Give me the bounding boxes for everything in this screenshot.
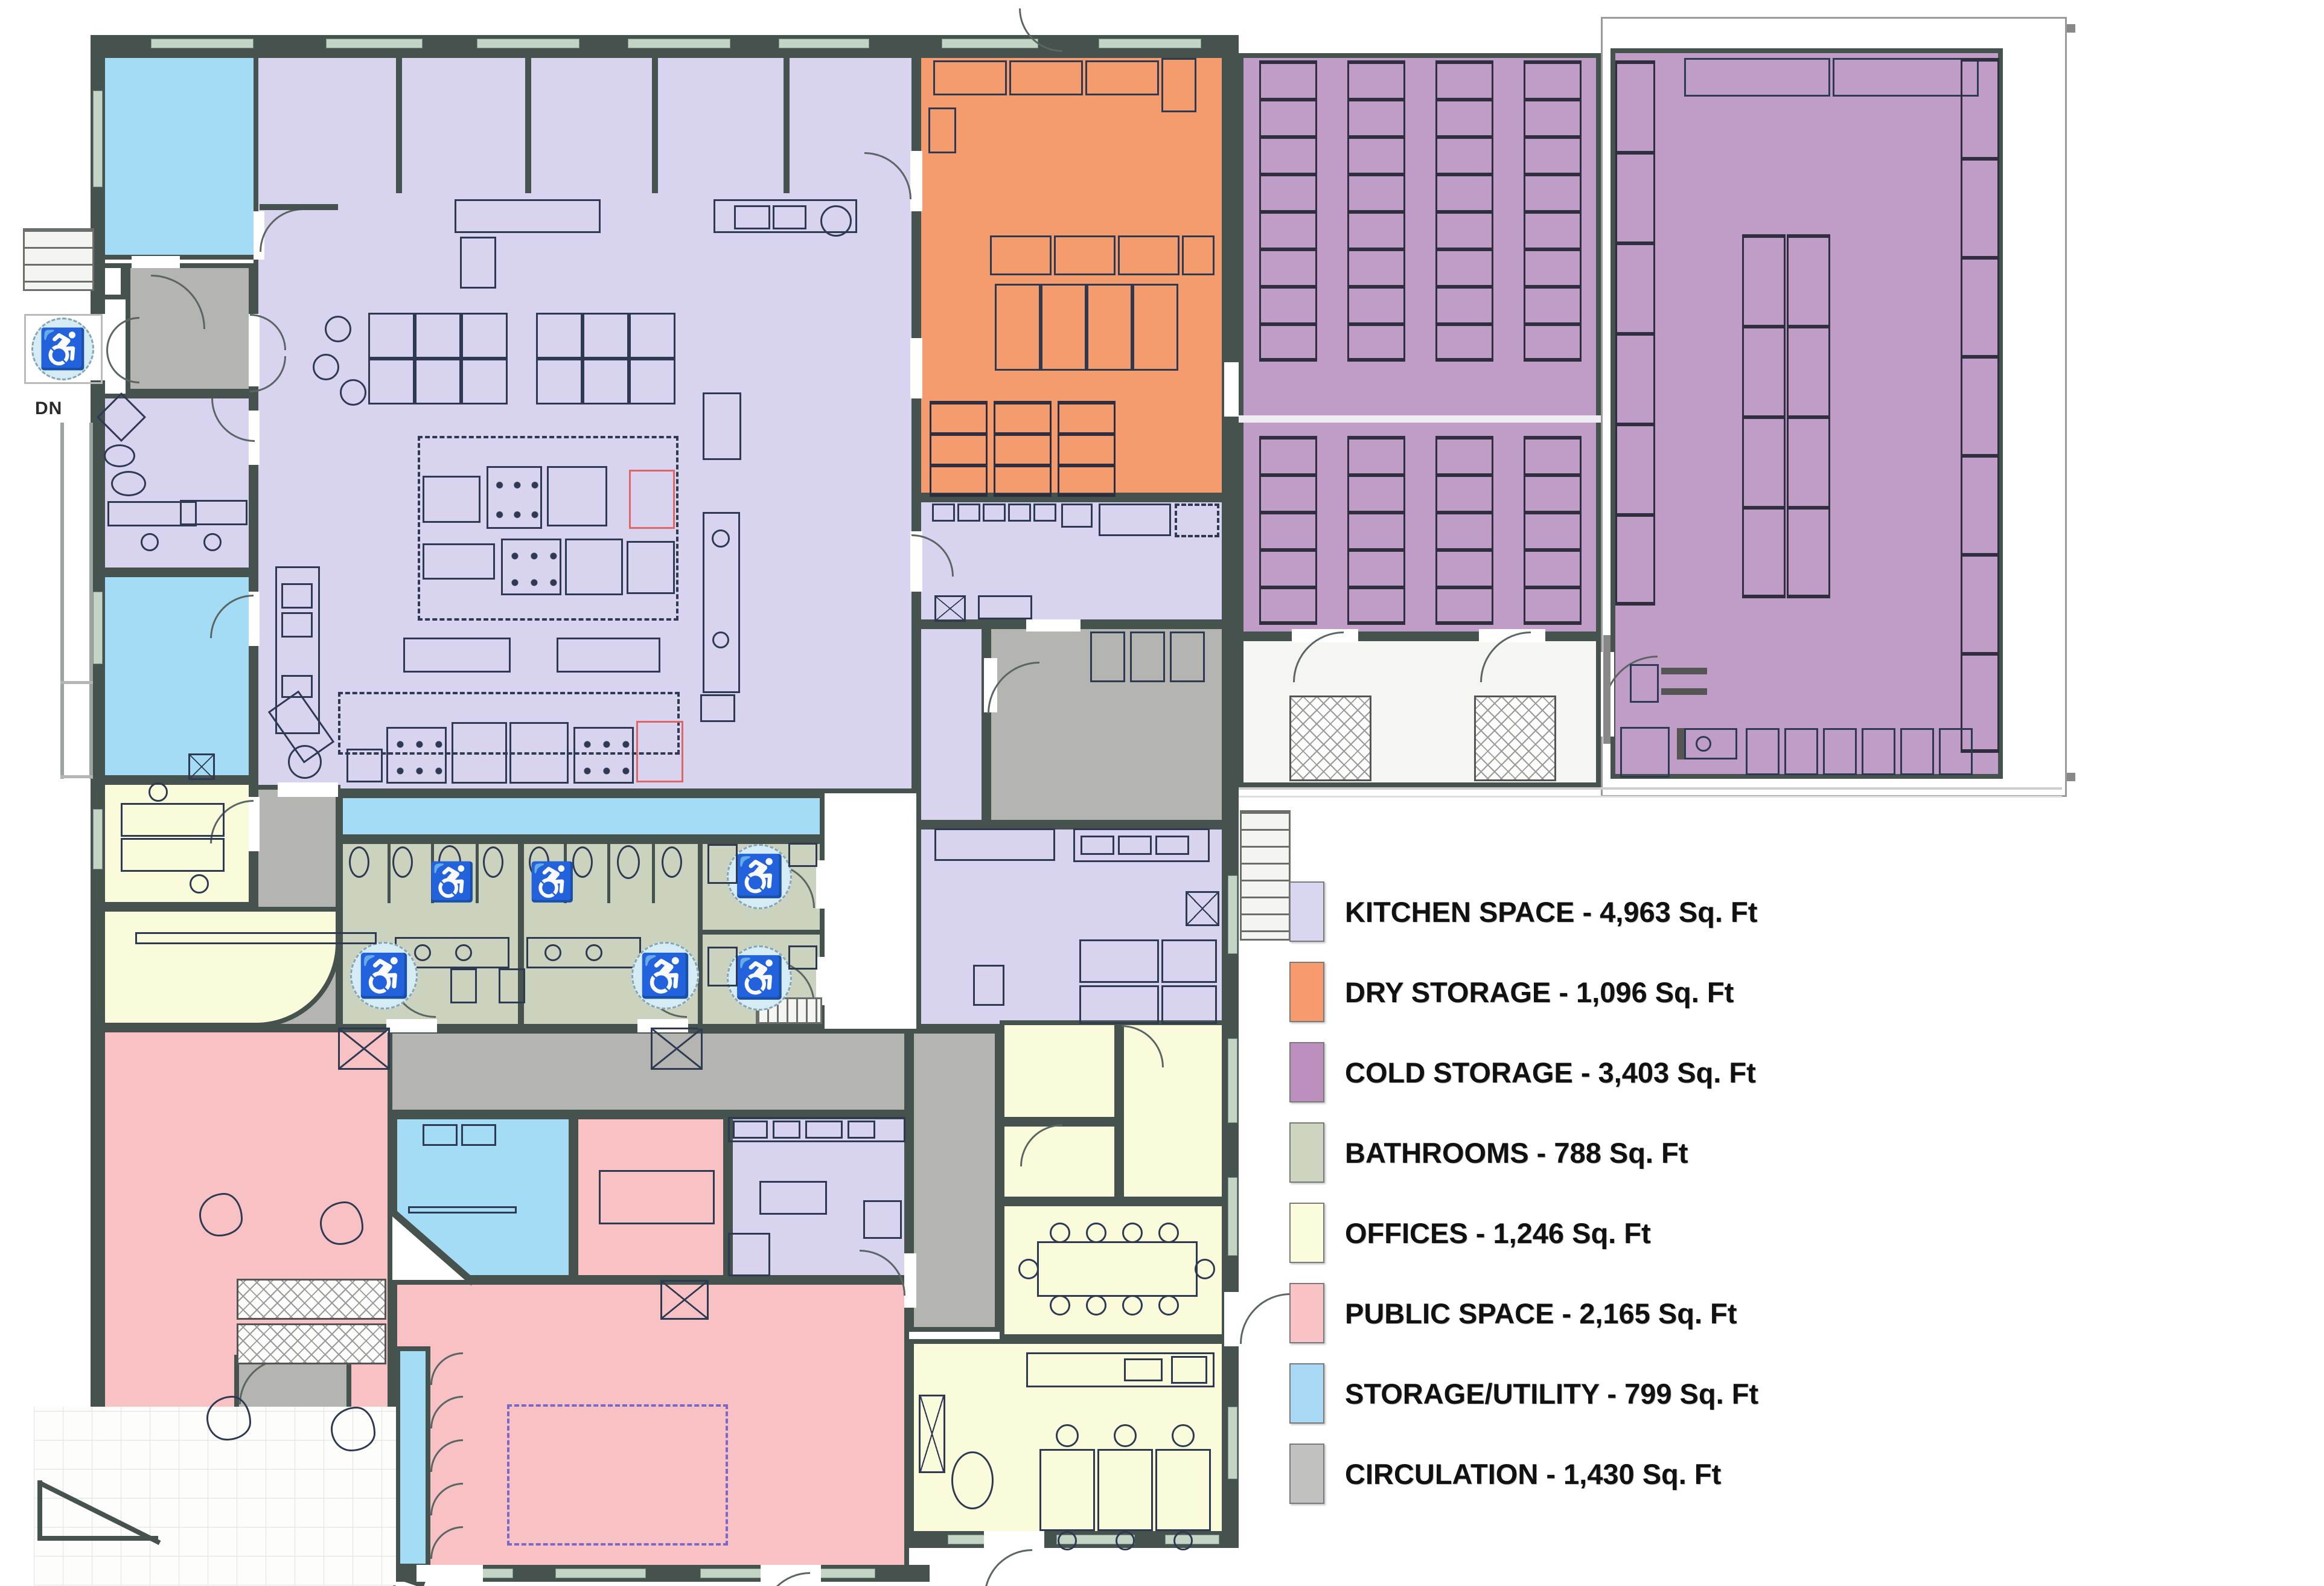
equipment-outline <box>1118 836 1152 855</box>
room-corridor-east <box>909 1029 1000 1332</box>
equipment-outline <box>1939 728 1973 775</box>
rack-cell <box>1961 159 1999 258</box>
room-kitchen-main <box>254 53 916 793</box>
rack-cell <box>1435 550 1493 587</box>
equipment-outline <box>773 205 806 229</box>
legend-label: STORAGE/UTILITY - 799 Sq. Ft <box>1345 1377 1758 1410</box>
rack-cell <box>1058 403 1116 434</box>
filled-shape <box>37 1480 42 1541</box>
equipment-outline <box>707 844 738 884</box>
rack-cell <box>1787 236 1830 327</box>
rack-cell <box>1347 513 1405 550</box>
window <box>1228 875 1237 954</box>
rack-cell <box>1742 236 1786 327</box>
rack-cell <box>1347 174 1405 212</box>
door-opening <box>984 1531 1044 1548</box>
hatch-pad <box>237 1279 386 1320</box>
equipment-outline <box>135 932 377 944</box>
rack-cell <box>1961 555 1999 654</box>
rack-cell <box>1524 287 1582 324</box>
equipment-outline <box>423 476 480 523</box>
hatch-pad <box>237 1323 386 1364</box>
rack-cell <box>1961 357 1999 456</box>
rack-cell <box>1435 324 1493 362</box>
lounge-chair <box>320 1201 363 1245</box>
equipment-outline <box>526 937 641 968</box>
equipment-outline <box>346 749 383 782</box>
legend-item-public-space: PUBLIC SPACE - 2,165 Sq. Ft <box>1289 1284 1758 1342</box>
stairs <box>1240 810 1291 941</box>
equipment-outline <box>1061 504 1093 528</box>
legend-swatch-public-space <box>1289 1283 1324 1343</box>
equipment-outline <box>1037 1241 1198 1297</box>
legend-label: DRY STORAGE - 1,096 Sq. Ft <box>1345 976 1734 1009</box>
pallet-rack <box>1787 234 1830 596</box>
rack-cell <box>1435 249 1493 287</box>
legend-swatch-dry-storage <box>1289 962 1324 1022</box>
wall <box>525 53 531 193</box>
equipment-outline <box>934 828 1055 861</box>
hatch-pad <box>1474 695 1556 781</box>
fixture-circle <box>325 316 351 342</box>
wall <box>260 204 338 210</box>
equipment-outline <box>627 541 675 594</box>
door-swing <box>106 317 139 350</box>
rack-cell <box>1524 249 1582 287</box>
equipment-outline <box>1784 728 1818 775</box>
fixture-ellipse <box>349 846 369 878</box>
filled-shape <box>1603 635 1611 744</box>
equipment-outline <box>583 313 629 359</box>
equipment-outline <box>1684 58 1830 97</box>
equipment-outline <box>1118 235 1180 275</box>
equipment-outline <box>990 235 1052 275</box>
door-opening <box>1224 362 1239 417</box>
rack-cell <box>1524 137 1582 174</box>
wall <box>652 53 658 193</box>
door-opening <box>1224 1292 1239 1346</box>
window <box>93 592 103 664</box>
rack-cell <box>930 403 988 434</box>
range-burners <box>501 539 561 595</box>
fixture-circle <box>1158 1223 1179 1243</box>
equipment-outline <box>1079 939 1159 983</box>
legend-swatch-bathrooms <box>1289 1122 1324 1183</box>
rack-cell <box>1259 438 1317 475</box>
equipment-outline <box>536 313 583 359</box>
equipment-outline <box>1085 60 1159 95</box>
rack-cell <box>1615 62 1655 153</box>
window <box>942 39 1038 48</box>
range-burners <box>386 727 447 784</box>
equipment-outline <box>565 539 623 595</box>
equipment-outline <box>629 359 675 404</box>
window <box>628 39 730 48</box>
rack-cell <box>1347 587 1405 625</box>
fixture-circle <box>1172 1424 1195 1447</box>
window <box>1228 1407 1237 1479</box>
fixture-circle <box>455 944 472 961</box>
fixture-circle <box>190 874 209 894</box>
x-marker <box>934 595 966 622</box>
fixture-ellipse <box>111 471 146 496</box>
equipment-outline <box>983 504 1006 522</box>
range-burners <box>573 727 634 784</box>
rack-cell <box>1347 550 1405 587</box>
rack-cell <box>930 465 988 497</box>
rack-cell <box>1259 513 1317 550</box>
rack-cell <box>1058 465 1116 497</box>
equipment-outline <box>1090 632 1125 682</box>
window <box>555 1568 646 1578</box>
fixture-circle <box>141 533 159 551</box>
rack-cell <box>1524 324 1582 362</box>
rack-cell <box>1615 153 1655 243</box>
equipment-outline <box>415 359 461 404</box>
fixture-circle <box>1056 1424 1079 1447</box>
door-opening <box>904 1253 916 1308</box>
equipment-outline <box>933 60 1007 95</box>
filled-shape <box>1239 796 2062 798</box>
equipment-outline <box>978 595 1032 619</box>
window <box>326 39 423 48</box>
equipment-outline <box>1170 632 1205 682</box>
equipment-outline <box>423 543 495 580</box>
rack-cell <box>1435 475 1493 513</box>
equipment-outline <box>1155 836 1189 855</box>
fixture-ellipse <box>951 1451 994 1509</box>
accessible-symbol: ♿ <box>631 942 699 1009</box>
fixture-circle <box>586 944 602 961</box>
rack-cell <box>1435 174 1493 212</box>
range-burners <box>487 466 542 529</box>
equipment-outline <box>557 638 660 673</box>
equipment-outline <box>583 359 629 404</box>
equipment-outline <box>1008 504 1031 522</box>
x-marker <box>919 1395 945 1473</box>
window <box>779 39 869 48</box>
door-opening <box>1026 619 1081 632</box>
filled-shape <box>60 775 93 778</box>
fixture-circle <box>1122 1295 1143 1316</box>
equipment-outline <box>1130 632 1165 682</box>
rack-cell <box>1347 100 1405 137</box>
rack-cell <box>1259 62 1317 100</box>
fixture-circle <box>1195 1259 1215 1279</box>
window <box>93 91 103 187</box>
floor-plan-sheet: ♿DN♿♿♿♿♿♿ KITCHEN SPACE - 4,963 Sq. Ft D… <box>0 0 2324 1586</box>
equipment-outline <box>1900 728 1934 775</box>
legend-swatch-circulation <box>1289 1444 1324 1504</box>
legend-item-circulation: CIRCULATION - 1,430 Sq. Ft <box>1289 1445 1758 1503</box>
rack-cell <box>1259 287 1317 324</box>
equipment-outline <box>973 965 1004 1006</box>
fixture-circle <box>544 944 561 961</box>
rack-cell <box>1524 550 1582 587</box>
rack-cell <box>1742 508 1786 598</box>
rack-cell <box>1058 434 1116 465</box>
legend-label: CIRCULATION - 1,430 Sq. Ft <box>1345 1457 1721 1491</box>
equipment-outline <box>1171 1356 1207 1384</box>
filled-shape <box>89 423 93 779</box>
equipment-outline <box>759 1181 827 1215</box>
window <box>1228 1038 1237 1123</box>
fixture-circle <box>1122 1223 1143 1243</box>
rack-cell <box>1524 438 1582 475</box>
x-marker <box>338 1028 390 1070</box>
rack-cell <box>1347 438 1405 475</box>
equipment-outline <box>928 107 956 153</box>
fixture-circle <box>1114 1424 1137 1447</box>
legend-item-dry-storage: DRY STORAGE - 1,096 Sq. Ft <box>1289 963 1758 1021</box>
pallet-rack <box>1259 436 1317 623</box>
equipment-outline <box>423 1124 458 1146</box>
equipment-outline <box>281 612 313 638</box>
equipment-outline <box>1039 1449 1095 1531</box>
rack-cell <box>1615 243 1655 334</box>
equipment-outline <box>403 638 511 673</box>
rack-cell <box>1259 324 1317 362</box>
fixture-ellipse <box>392 846 413 878</box>
equipment-outline <box>932 504 955 522</box>
equipment-outline <box>805 1121 843 1139</box>
rack-cell <box>1259 550 1317 587</box>
equipment-outline <box>408 1206 517 1213</box>
equipment-outline <box>460 237 496 289</box>
equipment-outline <box>1033 504 1056 522</box>
rack-cell <box>1259 100 1317 137</box>
rack-cell <box>1347 249 1405 287</box>
equipment-outline <box>599 1170 715 1224</box>
rack-cell <box>1961 60 1999 159</box>
rack-cell <box>1787 417 1830 508</box>
fixture-circle <box>1058 1531 1077 1550</box>
fixture-circle <box>712 632 729 648</box>
legend-item-bathrooms: BATHROOMS - 788 Sq. Ft <box>1289 1124 1758 1182</box>
legend-label: OFFICES - 1,246 Sq. Ft <box>1345 1217 1651 1250</box>
pallet-rack <box>1347 436 1405 623</box>
legend-swatch-storage-utility <box>1289 1363 1324 1424</box>
equipment-outline <box>848 1121 875 1139</box>
door-opening <box>132 256 180 268</box>
fixture-circle <box>1050 1295 1070 1316</box>
fixture-circle <box>1173 1531 1193 1550</box>
rack-cell <box>1259 475 1317 513</box>
pallet-rack <box>930 401 988 495</box>
equipment-outline <box>1833 58 1979 97</box>
rack-cell <box>1435 100 1493 137</box>
wall <box>652 843 655 903</box>
rack-cell <box>1435 287 1493 324</box>
rack-cell <box>1615 334 1655 424</box>
pallet-rack <box>1742 234 1786 596</box>
equipment-outline <box>1132 284 1178 371</box>
equipment-outline <box>450 968 477 1003</box>
fixture-ellipse <box>483 846 503 878</box>
equipment-outline <box>281 583 313 609</box>
rack-cell <box>1615 515 1655 606</box>
accessible-glyph: ♿ <box>433 863 471 901</box>
door-opening <box>386 1019 437 1032</box>
lounge-chair <box>206 1396 251 1441</box>
rack-cell <box>1259 587 1317 625</box>
accessible-glyph: ♿ <box>534 863 571 901</box>
door-opening <box>910 151 922 211</box>
legend-item-storage-utility: STORAGE/UTILITY - 799 Sq. Ft <box>1289 1364 1758 1422</box>
room-storage-utility-nw <box>97 53 258 260</box>
fixture-circle <box>712 529 730 548</box>
equipment-outline <box>499 968 525 1003</box>
x-marker <box>188 753 215 780</box>
door-opening <box>278 782 338 797</box>
fixture-circle <box>340 379 366 406</box>
equipment-outline <box>536 359 583 404</box>
rack-cell <box>1961 258 1999 357</box>
window <box>93 809 103 869</box>
equipment-outline <box>1620 727 1670 778</box>
equipment-outline <box>461 359 508 404</box>
rack-cell <box>1524 174 1582 212</box>
equipment-outline <box>1630 664 1659 703</box>
wall <box>396 53 402 193</box>
equipment-outline <box>1862 728 1895 775</box>
equipment-outline <box>703 392 741 460</box>
rack-cell <box>1524 587 1582 625</box>
fixture-circle <box>1158 1295 1179 1316</box>
equipment-outline <box>509 722 569 784</box>
fixture-circle <box>414 944 431 961</box>
rack-cell <box>1435 438 1493 475</box>
room-utility-strip <box>338 793 825 839</box>
rack-cell <box>1435 513 1493 550</box>
equipment-outline <box>1161 58 1196 112</box>
accessible-symbol: ♿ <box>31 318 94 380</box>
legend-item-offices: OFFICES - 1,246 Sq. Ft <box>1289 1204 1758 1262</box>
filled-shape <box>1239 415 1601 423</box>
rack-cell <box>1259 137 1317 174</box>
rack-cell <box>1961 456 1999 555</box>
rack-cell <box>994 403 1052 434</box>
window <box>477 39 579 48</box>
legend-swatch-offices <box>1289 1203 1324 1263</box>
equipment-outline <box>180 500 247 525</box>
rack-cell <box>1347 324 1405 362</box>
room-office-yellow-2 <box>97 907 340 1028</box>
pallet-rack <box>1058 401 1116 495</box>
fixture-circle <box>820 205 852 237</box>
wall <box>388 843 391 903</box>
legend-label: BATHROOMS - 788 Sq. Ft <box>1345 1136 1688 1169</box>
x-marker <box>660 1280 709 1320</box>
legend-swatch-cold-storage <box>1289 1042 1324 1102</box>
pallet-rack <box>1435 60 1493 360</box>
equipment-outline <box>121 803 225 837</box>
window <box>1228 1177 1237 1256</box>
equipment-outline <box>461 313 508 359</box>
legend: KITCHEN SPACE - 4,963 Sq. Ft DRY STORAGE… <box>1289 883 1758 1525</box>
legend-label: KITCHEN SPACE - 4,963 Sq. Ft <box>1345 895 1757 929</box>
filled-shape <box>60 681 93 684</box>
equipment-outline <box>1746 728 1780 775</box>
rack-cell <box>1524 212 1582 249</box>
pallet-rack <box>1961 58 1999 751</box>
equipment-outline <box>455 199 601 233</box>
equipment-outline <box>629 313 675 359</box>
equipment-outline <box>1155 1449 1211 1531</box>
window <box>151 39 254 48</box>
equipment-outline <box>707 947 738 986</box>
pallet-rack <box>1347 60 1405 360</box>
equipment-outline <box>368 313 415 359</box>
equipment-outline <box>1124 1358 1163 1381</box>
filled-shape <box>1677 728 1684 759</box>
projection-area <box>507 1404 728 1546</box>
equipment-outline <box>1823 728 1857 775</box>
equipment-outline <box>1161 985 1217 1024</box>
outlined-shape <box>629 470 675 529</box>
rack-cell <box>1435 587 1493 625</box>
wall <box>784 53 790 193</box>
equipment-outline <box>734 205 770 229</box>
legend-swatch-kitchen <box>1289 881 1324 942</box>
equipment-outline <box>368 359 415 404</box>
equipment-outline <box>1087 284 1132 371</box>
equipment-outline <box>957 504 980 522</box>
x-marker <box>1186 891 1219 926</box>
rack-cell <box>1347 137 1405 174</box>
equipment-outline <box>121 838 225 872</box>
equipment-outline <box>1161 939 1217 983</box>
door-opening <box>417 1565 483 1582</box>
fixture-circle <box>313 354 339 380</box>
rack-cell <box>930 434 988 465</box>
equipment-outline <box>415 313 461 359</box>
fixture-circle <box>1116 1531 1135 1550</box>
pallet-rack <box>1435 436 1493 623</box>
equipment-outline <box>1081 836 1114 855</box>
fixture-ellipse <box>104 444 135 467</box>
rack-cell <box>1347 212 1405 249</box>
fixture-circle <box>1696 736 1711 752</box>
rack-cell <box>1259 174 1317 212</box>
equipment-outline <box>863 1200 902 1239</box>
rack-cell <box>994 434 1052 465</box>
accessible-symbol: ♿ <box>350 942 418 1009</box>
room-chair-storage-strip <box>395 1346 430 1568</box>
rack-cell <box>1435 62 1493 100</box>
rack-cell <box>1524 100 1582 137</box>
rack-cell <box>1435 212 1493 249</box>
pallet-rack <box>1524 436 1582 623</box>
pallet-rack <box>1615 60 1655 604</box>
pallet-rack <box>1259 60 1317 360</box>
outlined-shape <box>636 721 683 782</box>
legend-label: PUBLIC SPACE - 2,165 Sq. Ft <box>1345 1297 1737 1330</box>
rack-cell <box>1259 212 1317 249</box>
door-swing <box>1240 1293 1291 1344</box>
filled-shape <box>1239 787 2062 790</box>
filled-shape <box>2067 24 2075 33</box>
rack-cell <box>1435 137 1493 174</box>
fixture-circle <box>148 782 168 802</box>
rack-cell <box>1524 513 1582 550</box>
rack-cell <box>1347 475 1405 513</box>
pallet-rack <box>994 401 1052 495</box>
equipment-outline <box>700 694 735 722</box>
equipment-outline <box>995 284 1041 371</box>
filled-shape <box>1661 668 1707 674</box>
fixture-circle <box>203 533 222 551</box>
